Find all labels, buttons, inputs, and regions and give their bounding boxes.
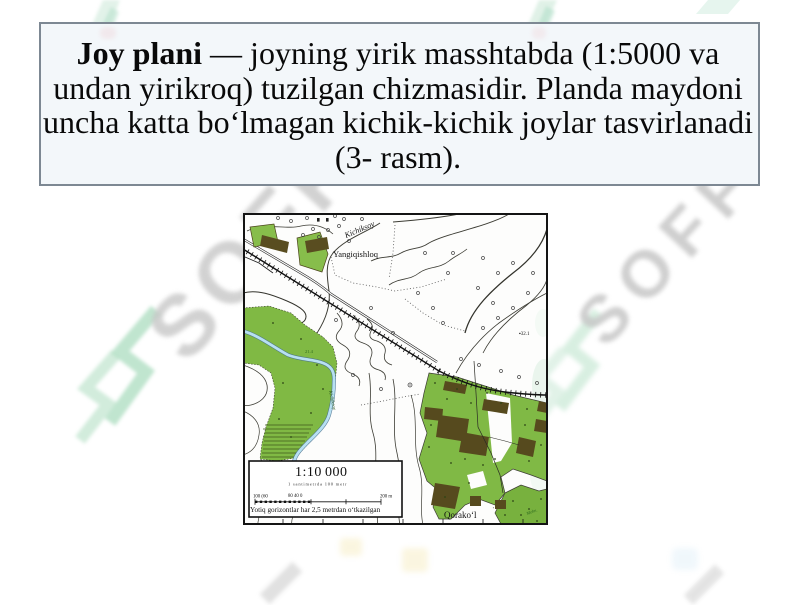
svg-text:000: 000	[325, 465, 348, 480]
svg-text:▪32.1: ▪32.1	[519, 332, 530, 337]
svg-text:200 m: 200 m	[380, 494, 392, 499]
svg-text:1:10: 1:10	[295, 465, 322, 480]
svg-text:100 (60: 100 (60	[253, 494, 268, 499]
svg-text:Yotiq gorizontlar har 2,5 metr: Yotiq gorizontlar har 2,5 metrdan o‘tkaz…	[250, 506, 381, 514]
svg-text:1 santimetrda 100 metr: 1 santimetrda 100 metr	[288, 482, 347, 487]
svg-text:Yangiqishloq: Yangiqishloq	[333, 249, 379, 259]
svg-text:Qorako‘l: Qorako‘l	[444, 510, 477, 520]
svg-text:21.4: 21.4	[305, 349, 314, 354]
svg-text:80 40 0: 80 40 0	[288, 494, 303, 499]
